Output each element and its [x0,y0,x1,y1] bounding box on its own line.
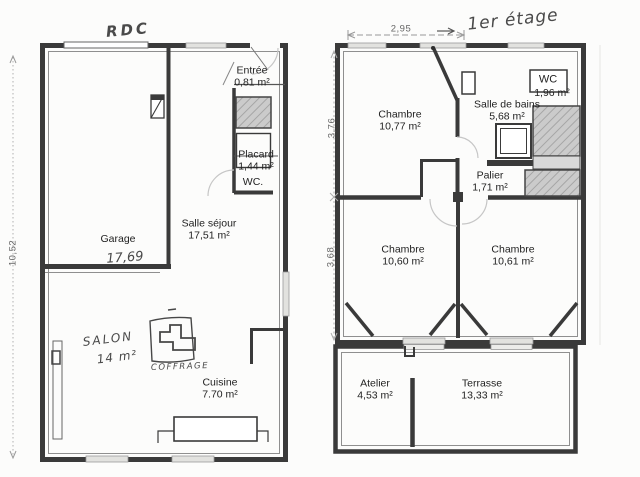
bathroom-column [462,72,475,94]
room-label-chambre-1: Chambre 10,77 m² [378,109,421,134]
garage-area-handwritten: 17,69 [106,249,144,267]
room-area: 10,77 m² [378,121,421,133]
room-name: Chambre [378,109,421,121]
plan-drawing [0,0,640,477]
etage-top-window-3 [508,43,544,48]
room-area: 7.70 m² [202,389,238,401]
bathroom-shelf-wall [487,160,536,166]
diagonal-wall [433,47,457,100]
chambre3-window [490,338,533,344]
rdc-dim-left-label: 10,52 [8,240,19,266]
rdc-title-handwritten: RDC [105,19,150,41]
coffrage-handwritten: COFFRAGE [151,361,209,373]
etage-dim-top-label: 2,95 [391,24,412,35]
rdc-top-window [186,43,226,48]
chambre2-window [403,338,445,344]
rdc-bottom-window-1 [86,456,128,462]
room-name: Atelier [357,378,393,390]
rdc-plan [10,41,289,462]
room-label-terrasse: Terrasse 13,33 m² [461,378,502,403]
rdc-stairs [236,97,271,128]
coffrage-sketch [150,309,195,362]
chambre2-door-arc [430,199,457,226]
room-label-garage: Garage [100,233,135,245]
room-name: Terrasse [461,378,502,390]
room-area: 10,61 m² [491,256,534,268]
room-label-atelier: Atelier 4,53 m² [357,378,393,403]
room-label-entree: Entrée 0,81 m² [234,65,270,90]
shower-tray [496,124,531,158]
room-name: Salle séjour [182,218,237,230]
room-label-palier: Palier 1,71 m² [472,170,508,195]
room-name: Chambre [381,244,424,256]
room-label-wc-rdc: WC. [243,176,263,188]
chimney-notch [422,161,457,198]
room-area: 13,33 m² [461,390,502,402]
etage-stairs-landing [533,156,580,169]
entree-door-gap [250,41,280,50]
room-area: 5,68 m² [474,111,540,123]
room-area: 10,60 m² [381,256,424,268]
rdc-bottom-window-2 [172,456,214,462]
rdc-right-window [283,272,289,316]
etage-top-window-2 [420,43,466,48]
etage-dim-left-upper-label: 3,76 [327,118,338,139]
room-label-sdb: Salle de bains 5,68 m² [474,99,540,124]
room-area: 1,71 m² [472,182,508,194]
room-name: Entrée [234,65,270,77]
etage-dim-left-lower-label: 3,68 [326,247,337,268]
wc-door-arc [208,170,234,196]
room-area: 4,53 m² [357,390,393,402]
room-label-placard: Placard 1,44 m² [238,149,274,174]
room-name: Palier [472,170,508,182]
etage-title-arrow [437,28,454,34]
room-name: Salle de bains [474,99,540,111]
room-name: Placard [238,149,274,161]
room-name: Cuisine [202,377,238,389]
room-label-sejour: Salle séjour 17,51 m² [182,218,237,243]
floorplan-scan: RDC 1er étage 17,69 SALON 14 m² COFFRAGE… [0,0,640,477]
room-area: 17,51 m² [182,230,237,242]
chambre3-door-arc [462,199,487,224]
etage-stairs-upper [533,106,580,156]
room-label-cuisine: Cuisine 7.70 m² [202,377,238,402]
sdb-door-arc [457,137,478,158]
room-name: Chambre [491,244,534,256]
etage-top-window-1 [348,43,386,48]
room-label-chambre-2: Chambre 10,60 m² [381,244,424,269]
room-area-wc-etage: 1,96 m² [534,87,570,99]
kitchen-counter [174,417,257,441]
garage-door [64,42,148,48]
room-area: 0,81 m² [234,77,270,89]
room-area: 1,44 m² [238,161,274,173]
room-label-wc-etage: WC [539,74,557,87]
flue-box [151,95,164,118]
room-label-chambre-3: Chambre 10,61 m² [491,244,534,269]
etage-stairs-lower [525,170,580,196]
